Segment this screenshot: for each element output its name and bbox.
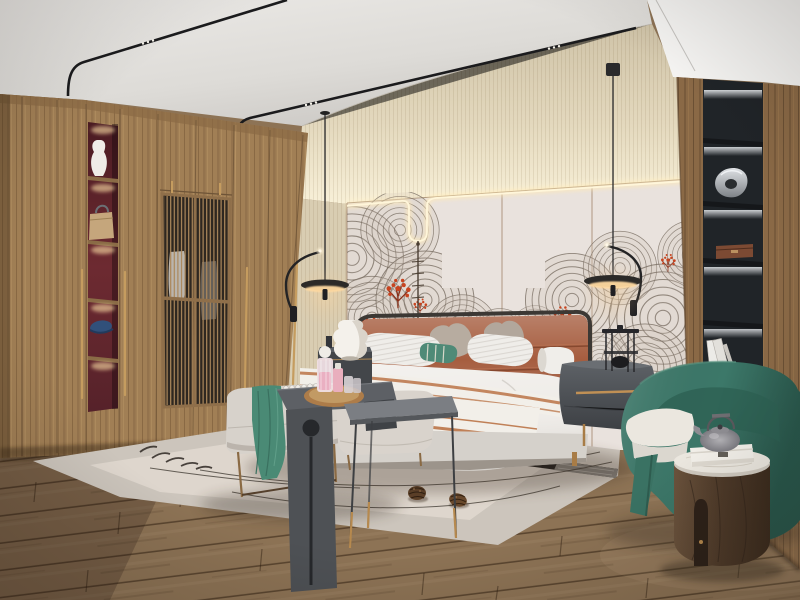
vignette-overlay <box>0 0 800 600</box>
bedroom-render <box>0 0 800 600</box>
scene-canvas <box>0 0 800 600</box>
